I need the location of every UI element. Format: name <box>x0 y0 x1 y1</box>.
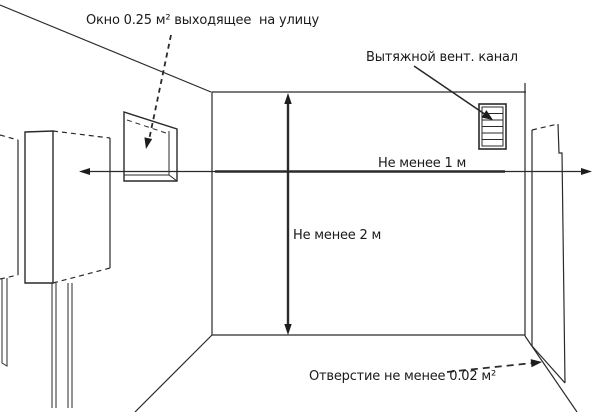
door-right-edge <box>558 124 565 383</box>
arrow-up-head <box>284 93 291 104</box>
width-dimension-arrow <box>79 168 592 175</box>
window-leader-arrow <box>144 35 171 149</box>
door-icon <box>532 124 565 383</box>
arrow-down-head <box>284 324 291 335</box>
floor-edge-left <box>135 335 212 412</box>
window-label: Окно 0.25 м² выходящее на улицу <box>86 14 319 28</box>
vent-grille-icon <box>479 104 506 149</box>
window-frame-icon <box>124 112 177 181</box>
height-dimension-label: Не менее 2 м <box>293 229 381 243</box>
window-leader-head <box>144 137 152 149</box>
vent-leader-head <box>481 110 493 120</box>
door-top-edge <box>532 124 558 130</box>
vent-leader-arrow <box>414 66 493 120</box>
boiler-side-top-edge <box>53 131 110 138</box>
opening-label: Отверстие не менее 0.02 м² <box>309 370 496 384</box>
boiler-icon <box>25 131 110 408</box>
vent-leader-line <box>414 66 486 115</box>
hidden-appliance-bottom-edge <box>0 275 18 279</box>
boiler-side-bottom-edge <box>53 268 110 283</box>
hidden-appliance-outline <box>0 135 18 366</box>
vent-channel-label: Вытяжной вент. канал <box>366 51 518 65</box>
arrow-left-head <box>79 168 90 175</box>
opening-leader-head <box>531 359 542 367</box>
hidden-appliance-top-edge <box>0 135 18 140</box>
boiler-front-face <box>25 131 53 283</box>
arrow-right-head <box>581 168 592 175</box>
wall-pipe-strip <box>2 278 7 366</box>
width-dimension-label: Не менее 1 м <box>378 157 466 171</box>
boiler-pipes <box>52 283 72 408</box>
height-dimension-arrow <box>284 93 291 335</box>
window-inner-top-edge <box>127 120 169 134</box>
window-sill <box>124 175 177 181</box>
boiler-room-diagram: Окно 0.25 м² выходящее на улицу Вытяжной… <box>0 0 600 412</box>
